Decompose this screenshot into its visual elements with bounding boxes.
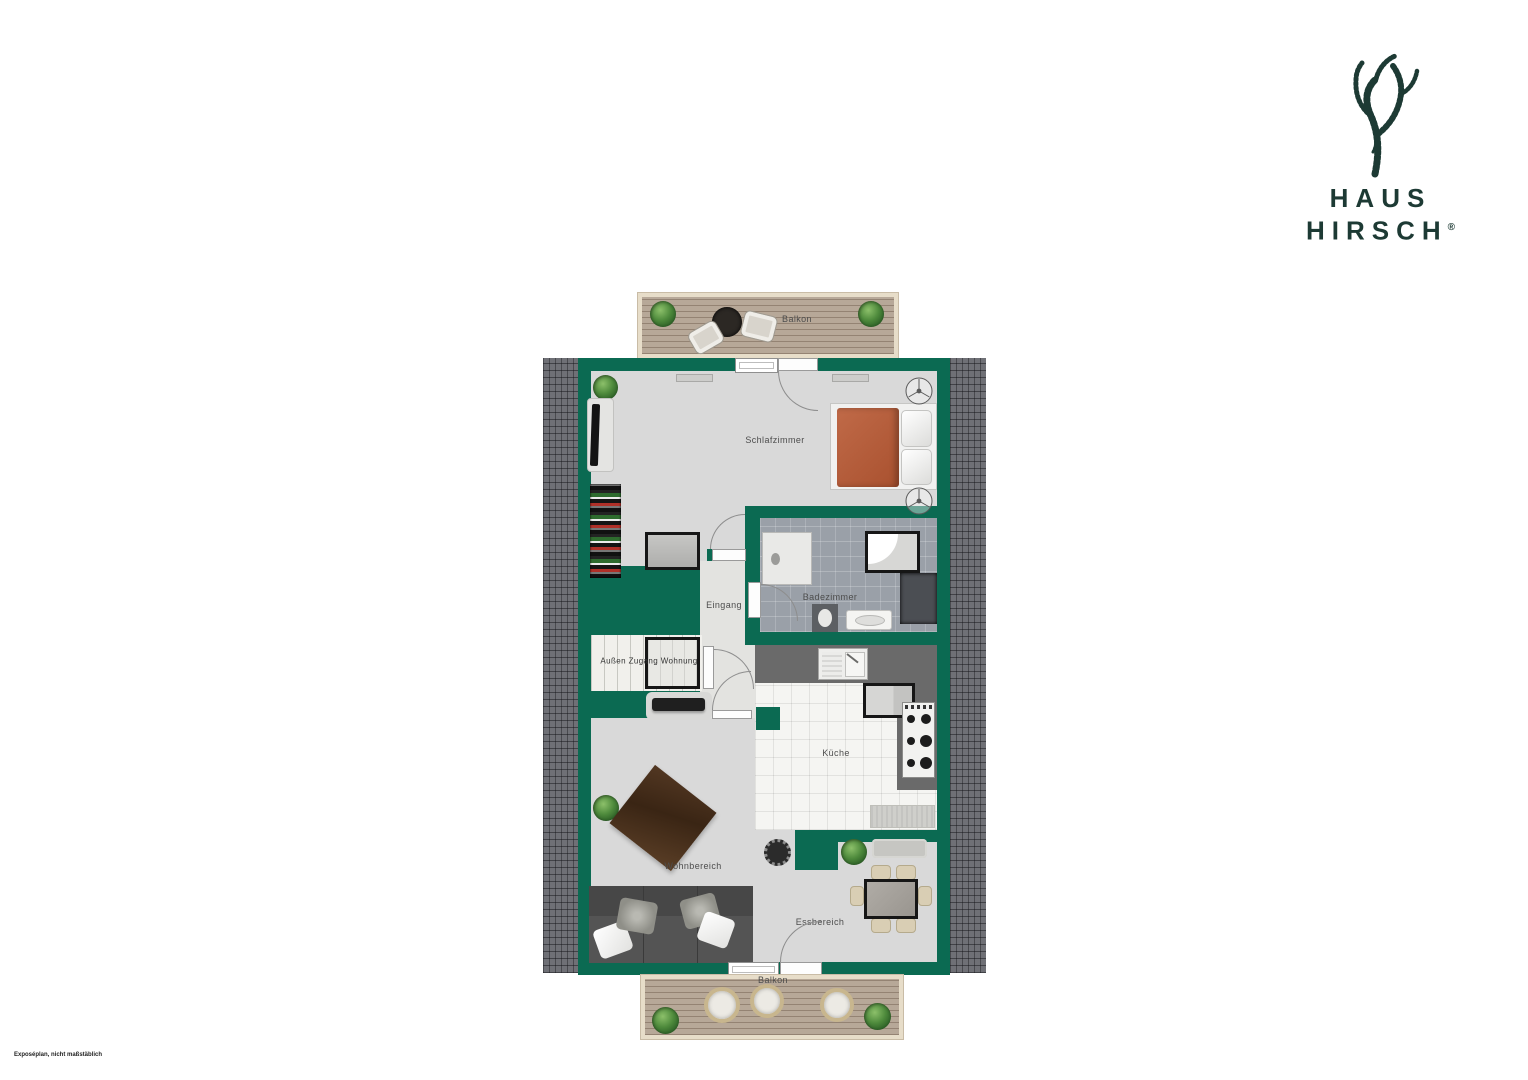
dining-chair xyxy=(871,918,891,933)
brand-logo: HAUS HIRSCH® xyxy=(1282,46,1472,246)
antler-icon xyxy=(1331,46,1423,178)
sofa xyxy=(589,886,753,963)
entry-door xyxy=(703,646,714,689)
brand-line1: HAUS xyxy=(1282,183,1472,213)
balcony-top xyxy=(638,293,898,358)
room-label-schlafzimmer: Schlafzimmer xyxy=(745,435,804,445)
sofa-back xyxy=(589,886,753,916)
kitchen-sink xyxy=(818,648,868,680)
stove-controls xyxy=(905,705,932,709)
room-label-balkon-bottom: Balkon xyxy=(758,975,788,985)
corner-basin xyxy=(865,531,920,573)
ceiling-fan-icon xyxy=(904,376,934,406)
dining-chair xyxy=(850,886,864,906)
sink-bowl-left xyxy=(822,652,842,677)
radiator xyxy=(676,374,713,382)
bed-pillow xyxy=(901,449,932,485)
room-label-wohnbereich: Wohnbereich xyxy=(664,861,721,871)
burner xyxy=(921,714,931,724)
wall-stub-dining xyxy=(795,842,838,870)
bedroom-door xyxy=(712,549,746,561)
page: HAUS HIRSCH® Balkon xyxy=(0,0,1528,1080)
dining-chair xyxy=(896,865,916,880)
label-aussen-zugang: Außen Zugang Wohnung xyxy=(600,657,697,666)
room-label-kueche: Küche xyxy=(822,748,850,758)
room-label-badezimmer: Badezimmer xyxy=(803,592,858,602)
bed-pillow xyxy=(901,410,932,447)
plant-icon xyxy=(650,301,676,327)
plant-icon xyxy=(858,301,884,327)
dining-chair xyxy=(896,918,916,933)
console-shelf xyxy=(652,698,705,711)
plant-icon xyxy=(864,1003,891,1030)
bathroom-cabinet xyxy=(900,573,937,624)
sofa-pillow xyxy=(616,897,659,935)
pouf xyxy=(820,988,854,1022)
room-label-balkon-top: Balkon xyxy=(782,314,812,324)
bathroom-sink xyxy=(846,610,892,630)
window xyxy=(735,358,778,373)
balcony-chair xyxy=(739,309,779,343)
toilet-seat xyxy=(818,609,832,627)
balcony-door-bottom xyxy=(780,962,822,975)
balcony-door-top xyxy=(778,358,818,371)
ceiling-fan-icon xyxy=(904,486,934,516)
roof-left xyxy=(543,358,578,973)
burner xyxy=(907,759,915,767)
roof-right xyxy=(950,358,986,973)
shower xyxy=(762,532,812,585)
wall-stub-kitchen xyxy=(756,707,780,730)
plant-icon xyxy=(652,1007,679,1034)
burner xyxy=(907,737,915,745)
bed xyxy=(830,403,937,490)
living-door xyxy=(712,710,752,719)
sideboard xyxy=(872,839,927,858)
dining-chair xyxy=(918,886,932,906)
wardrobe xyxy=(590,484,621,578)
radiator xyxy=(832,374,869,382)
registered-mark: ® xyxy=(1448,222,1455,233)
plant-icon xyxy=(593,375,618,400)
burner xyxy=(907,715,915,723)
plant-icon xyxy=(841,839,867,865)
disclaimer-text: Exposéplan, nicht maßstäblich xyxy=(14,1052,102,1058)
sink-basin xyxy=(855,615,885,626)
dining-chair xyxy=(871,865,891,880)
round-side-table xyxy=(764,839,791,866)
burner xyxy=(920,735,932,747)
bathroom-door xyxy=(748,582,761,618)
pouf xyxy=(704,987,740,1023)
burner xyxy=(920,757,932,769)
room-label-eingang: Eingang xyxy=(706,600,742,610)
corner-basin-bowl xyxy=(868,534,898,564)
bed-duvet xyxy=(837,408,899,487)
kitchen-mat xyxy=(870,805,935,828)
brand-line2: HIRSCH® xyxy=(1282,213,1472,246)
stove xyxy=(902,702,935,778)
dresser xyxy=(645,532,700,570)
toilet xyxy=(812,604,838,632)
shower-drain xyxy=(771,553,780,565)
pouf xyxy=(750,984,784,1018)
dining-table xyxy=(864,879,918,919)
